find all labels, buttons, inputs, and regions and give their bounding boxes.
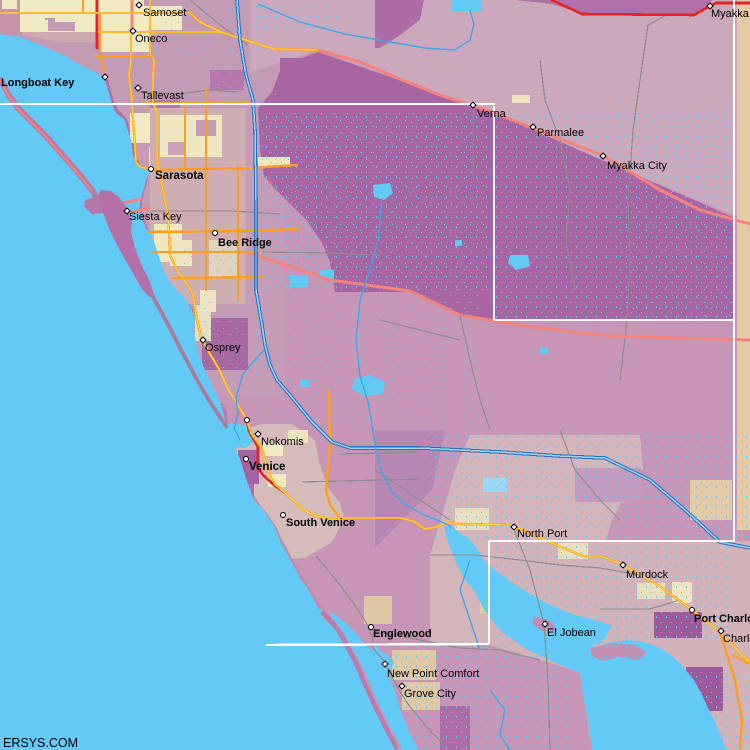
svg-text:Samoset: Samoset — [143, 7, 186, 19]
svg-text:Myakka: Myakka — [711, 8, 750, 20]
svg-text:Englewood: Englewood — [373, 628, 432, 640]
svg-text:New Point Comfort: New Point Comfort — [387, 668, 479, 680]
svg-text:Verna: Verna — [477, 108, 507, 120]
svg-text:Port Charlotte: Port Charlotte — [694, 613, 750, 625]
svg-text:Bee Ridge: Bee Ridge — [218, 237, 272, 249]
svg-text:Parmalee: Parmalee — [537, 127, 584, 139]
svg-text:Oneco: Oneco — [135, 33, 167, 45]
svg-text:Osprey: Osprey — [205, 342, 241, 354]
svg-text:Charlotte Harbor: Charlotte Harbor — [723, 633, 750, 645]
svg-text:South Venice: South Venice — [286, 517, 355, 529]
svg-text:El Jobean: El Jobean — [547, 627, 596, 639]
svg-text:Tallevast: Tallevast — [141, 90, 184, 102]
svg-text:Venice: Venice — [249, 461, 285, 473]
svg-text:Nokomis: Nokomis — [261, 436, 304, 448]
svg-text:Murdock: Murdock — [626, 569, 669, 581]
svg-text:Grove City: Grove City — [404, 688, 456, 700]
svg-text:Siesta Key: Siesta Key — [129, 211, 182, 223]
svg-text:Longboat Key: Longboat Key — [1, 77, 75, 89]
svg-text:Sarasota: Sarasota — [155, 170, 204, 182]
svg-text:ERSYS.COM: ERSYS.COM — [3, 736, 78, 750]
svg-text:Myakka City: Myakka City — [607, 160, 667, 172]
svg-text:North Port: North Port — [517, 528, 567, 540]
